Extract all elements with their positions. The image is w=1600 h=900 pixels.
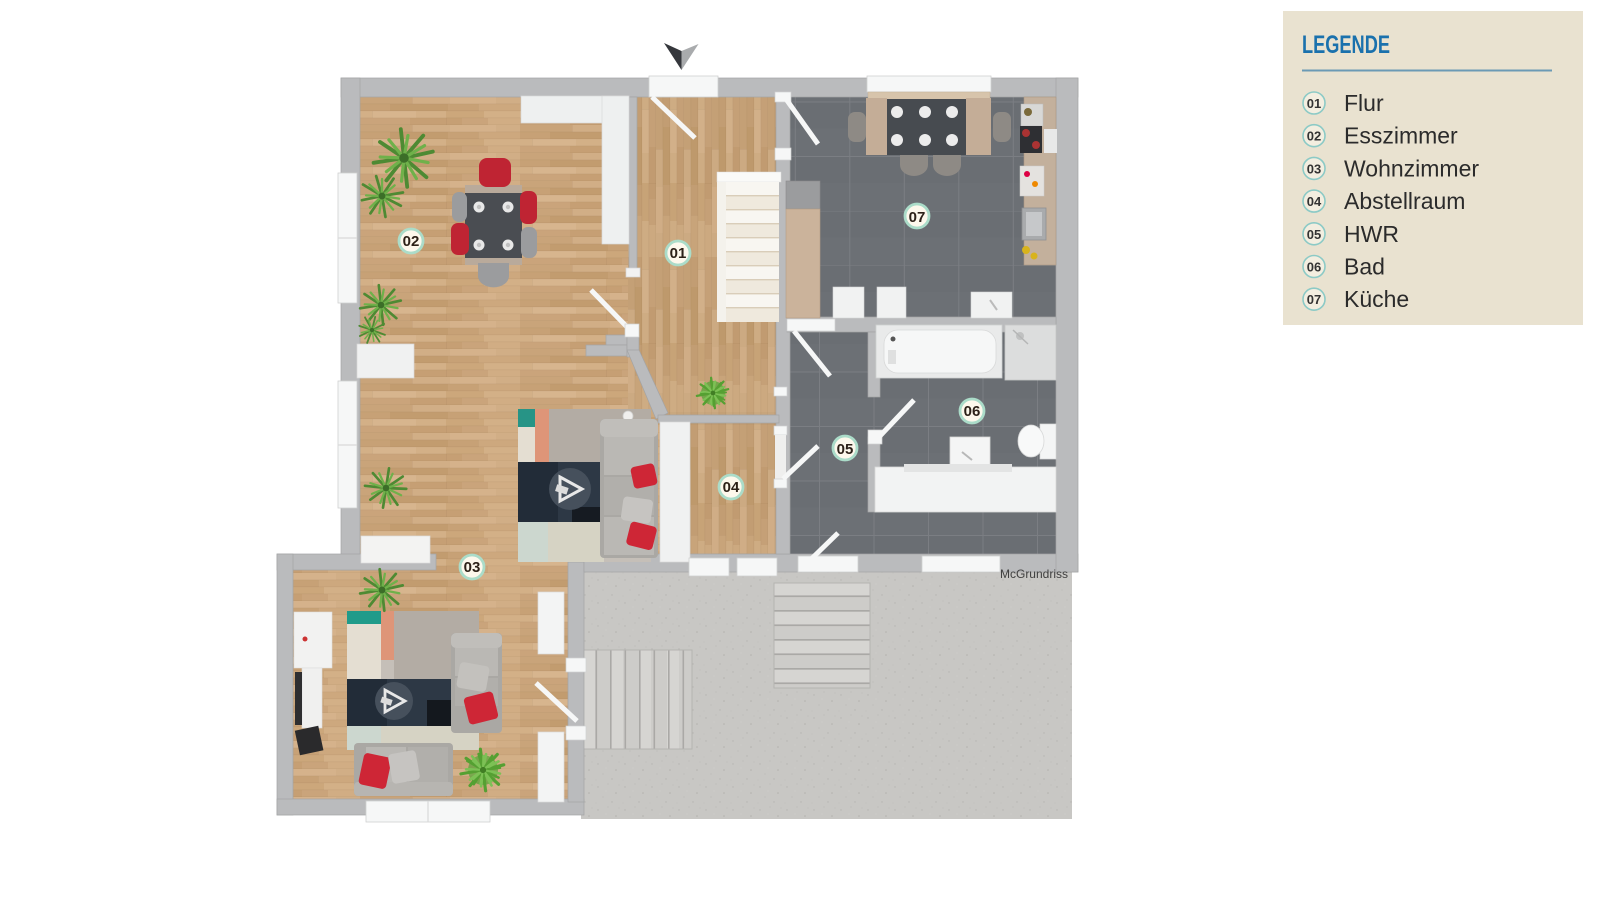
svg-text:Abstellraum: Abstellraum: [1344, 188, 1465, 214]
svg-text:Wohnzimmer: Wohnzimmer: [1344, 155, 1479, 181]
svg-text:06: 06: [1307, 260, 1321, 275]
svg-text:07: 07: [1307, 292, 1321, 307]
svg-text:02: 02: [1307, 129, 1321, 144]
svg-text:04: 04: [723, 479, 740, 496]
svg-text:06: 06: [964, 403, 981, 420]
svg-text:Bad: Bad: [1344, 254, 1385, 280]
svg-text:McGrundriss: McGrundriss: [1000, 567, 1068, 581]
svg-text:03: 03: [1307, 161, 1321, 176]
svg-text:Esszimmer: Esszimmer: [1344, 123, 1458, 149]
svg-text:04: 04: [1307, 194, 1322, 209]
svg-text:HWR: HWR: [1344, 221, 1399, 247]
svg-text:07: 07: [909, 209, 926, 226]
svg-text:Flur: Flur: [1344, 90, 1384, 116]
svg-text:02: 02: [403, 233, 420, 250]
svg-text:03: 03: [464, 559, 481, 576]
svg-text:01: 01: [1307, 96, 1321, 111]
svg-text:05: 05: [1307, 227, 1321, 242]
svg-text:Küche: Küche: [1344, 286, 1409, 312]
svg-text:01: 01: [670, 245, 687, 262]
svg-text:LEGENDE: LEGENDE: [1302, 31, 1390, 59]
svg-text:05: 05: [837, 441, 854, 458]
